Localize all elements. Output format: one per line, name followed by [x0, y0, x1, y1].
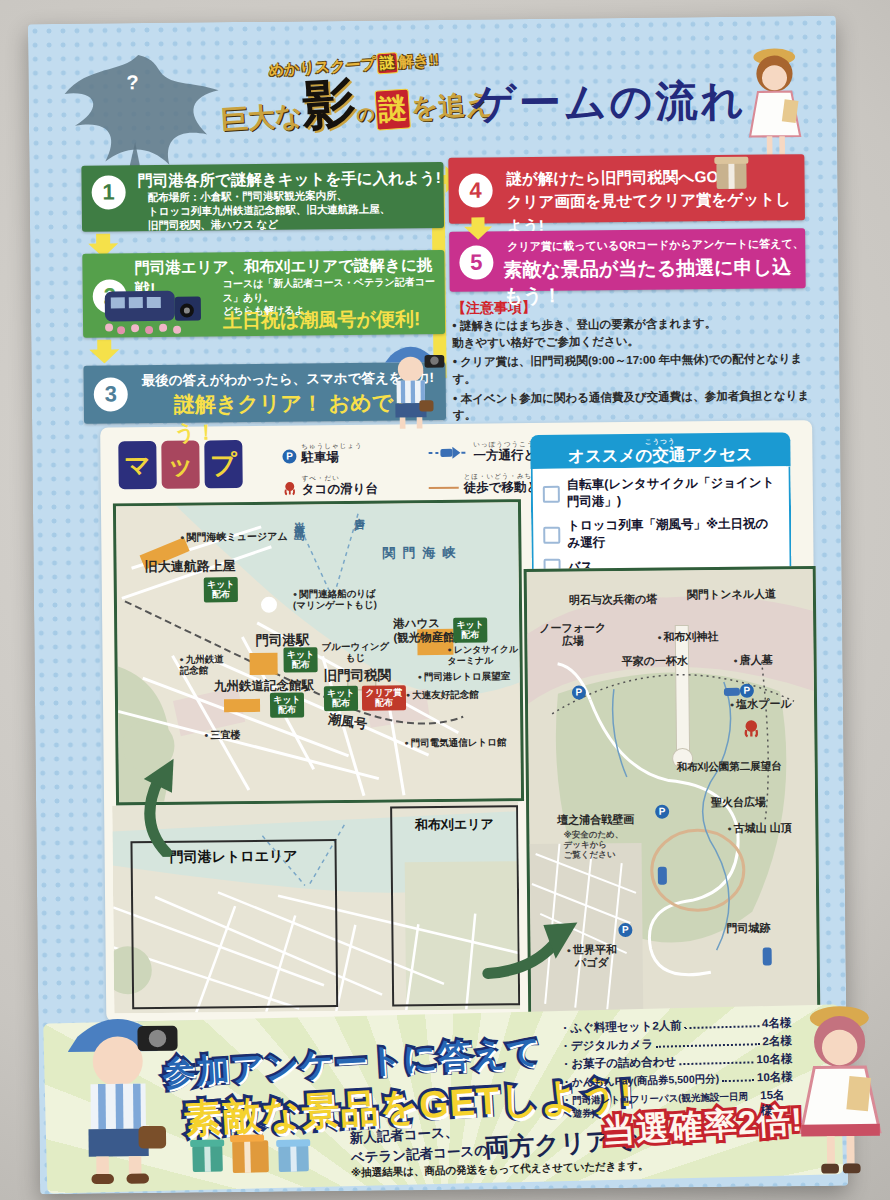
- parking-marker: P: [740, 684, 754, 698]
- prize-name: 門司港レトロフリーパス(観光施設一日周遊券): [572, 1090, 755, 1120]
- dotted-leader: [722, 1079, 754, 1082]
- checkbox-icon: [543, 485, 560, 502]
- arrow-to-right-map: [481, 915, 580, 982]
- prize-row: お菓子の詰め合わせ10名様: [560, 1051, 792, 1072]
- step-1-box: 1 門司港各所で謎解きキットを手に入れよう! 配布場所：小倉駅・門司港駅観光案内…: [81, 162, 444, 232]
- kit-badge: キット配布: [204, 577, 238, 602]
- kit-badge: キット配布: [270, 692, 304, 717]
- map-title-char: ッ: [161, 440, 200, 488]
- monster-question-mark: ?: [126, 71, 138, 94]
- map-label: 旧大連航路上屋: [145, 558, 236, 575]
- legend-parking: P ちゅうしゃじょう駐車場: [282, 443, 362, 464]
- gift-icon: [278, 1145, 309, 1172]
- access-item: 自転車(レンタサイクル「ジョイント門司港」): [543, 474, 779, 510]
- step-3-number: 3: [94, 377, 128, 411]
- dotted-leader: [679, 1061, 753, 1065]
- flyer-sheet: ? めかりスクープ謎解き!! 巨大な影の謎を追え ゲームの流れ 1 門司港各所で…: [28, 16, 848, 1194]
- map-label: ブルーウィング もじ: [321, 641, 389, 664]
- map-label: 門司港レトロ展望室: [418, 670, 511, 682]
- map-label: 関門海峡: [382, 545, 462, 561]
- map-label: 巌流島: [292, 512, 305, 524]
- logo-kage: 影: [300, 72, 358, 135]
- reporter-boy-icon: [42, 1005, 194, 1189]
- map-label: 塩水プール: [730, 697, 792, 711]
- map-label: 三宜楼: [204, 729, 240, 741]
- map-label: 和布刈公園第二展望台: [677, 759, 782, 773]
- train-icon: [97, 288, 207, 335]
- map-label: 聖火台広場: [711, 796, 766, 810]
- oneway-arrow-icon: [428, 447, 468, 459]
- dotted-leader: [656, 1043, 759, 1048]
- step-1-number: 1: [91, 175, 125, 209]
- step-4-box: 4 謎が解けたら旧門司税関へGO クリア画面を見せてクリア賞をゲットしよう!: [448, 154, 805, 224]
- map-title: マ ッ プ: [118, 440, 242, 489]
- access-item-label: トロッコ列車「潮風号」※土日祝のみ運行: [567, 515, 779, 551]
- logo-arc-post: 解き!!: [398, 51, 439, 70]
- map-label: 関門トンネル人道: [687, 587, 776, 601]
- clear-badge: クリア賞配布: [362, 685, 406, 710]
- step-2-highlight: 土日祝は潮風号が便利!: [223, 306, 420, 334]
- map-label: 大連友好記念館: [406, 689, 479, 701]
- reporter-boy-icon: [367, 338, 454, 435]
- map-label: 旧門司税関: [324, 667, 392, 684]
- map-label: 唐戸: [352, 509, 365, 513]
- map-label: 唐人墓: [734, 653, 773, 667]
- step-5-number: 5: [459, 245, 493, 279]
- map-label: 関門海峡ミュージアム: [180, 531, 288, 544]
- retro-area-box: 門司港レトロエリア: [130, 839, 338, 1009]
- photo-background: ? めかりスクープ謎解き!! 巨大な影の謎を追え ゲームの流れ 1 門司港各所で…: [0, 0, 890, 1200]
- map-title-char: プ: [204, 440, 243, 488]
- kit-badge: キット配布: [324, 686, 358, 711]
- note-item: クリア賞は、旧門司税関(9:00～17:00 年中無休)での配付となります。: [452, 350, 810, 387]
- step-1-body: 配布場所：小倉駅・門司港駅観光案内所、 トロッコ列車九州鉄道記念館駅、旧大連航路…: [148, 187, 391, 232]
- legend-octopus: すべ・だいタコの滑り台: [283, 475, 378, 496]
- prize-row: デジタルカメラ2名様: [560, 1033, 792, 1054]
- map-label: 明石与次兵衛の塔: [569, 593, 657, 607]
- map-label: 平家の一杯水: [622, 654, 688, 668]
- dotted-leader: [685, 1025, 759, 1029]
- logo-arc-nazo: 謎: [376, 52, 398, 74]
- area-label: 和布刈エリア: [392, 815, 516, 834]
- step-2-box: 2 門司港エリア、和布刈エリアで謎解きに挑戦! コースは「新人記者コース・ベテラ…: [82, 250, 445, 338]
- map-label: 港ハウス (観光物産館): [393, 617, 458, 645]
- arrow-down-icon: [464, 215, 492, 241]
- logo-pre: 巨大な: [220, 100, 303, 135]
- parking-icon: P: [282, 449, 296, 463]
- kit-badge: キット配布: [453, 617, 487, 642]
- prize-name: ふぐ料理セット2人前: [570, 1018, 682, 1036]
- map-label: ※安全のため、 デッキから ご覧ください: [563, 829, 623, 860]
- reporter-girl-icon: [780, 1001, 890, 1180]
- arrow-down-icon: [89, 339, 119, 363]
- parking-marker: P: [572, 685, 586, 699]
- footer-course-note: 新人記者コース、 ベテラン記者コースの: [349, 1121, 488, 1170]
- parking-marker: P: [655, 805, 669, 819]
- walk-road-icon: [429, 487, 459, 489]
- note-item: 謎解きにはまち歩き、登山の要素が含まれます。 動きやすい格好でご参加ください。: [452, 314, 810, 351]
- legend-label: 駐車場: [301, 450, 362, 463]
- step-4-number: 4: [458, 173, 492, 207]
- map-label: 門司電気通信レトロ館: [404, 736, 506, 748]
- map-label: ノーフォーク 広場: [539, 621, 606, 648]
- access-item-label: 自転車(レンタサイクル「ジョイント門司港」): [567, 474, 779, 510]
- prize-list: ふぐ料理セット2人前4名様 デジタルカメラ2名様 お菓子の詰め合わせ10名様 か…: [559, 1015, 793, 1126]
- access-box: こうつう オススメの交通アクセス 自転車(レンタサイクル「ジョイント門司港」) …: [530, 432, 792, 584]
- map-label: 門司城跡: [726, 922, 770, 936]
- prize-name: お菓子の詰め合わせ: [571, 1054, 676, 1072]
- access-ruby: こうつう: [645, 439, 676, 446]
- parking-marker: P: [618, 923, 632, 937]
- map-label: 古城山 山頂: [727, 821, 791, 835]
- kit-badge: キット配布: [283, 647, 317, 672]
- logo: めかりスクープ謎解き!! 巨大な影の謎を追え: [199, 45, 513, 141]
- arrow-to-left-map: [128, 752, 203, 857]
- gift-icon: [192, 1145, 223, 1172]
- map-label: レンタサイクル ターミナル: [447, 644, 518, 666]
- step-5-body: クリア賞に載っているQRコードからアンケートに答えて、: [507, 236, 804, 254]
- map-title-char: マ: [118, 441, 157, 489]
- access-item: トロッコ列車「潮風号」※土日祝のみ運行: [543, 515, 779, 551]
- prize-row: ふぐ料理セット2人前4名様: [559, 1015, 791, 1036]
- page-title: ゲームの流れ: [472, 73, 747, 132]
- access-title: オススメの交通アクセス: [568, 445, 753, 463]
- checkbox-icon: [543, 526, 560, 543]
- step-4-headline: 謎が解けたら旧門司税関へGO クリア画面を見せてクリア賞をゲットしよう!: [506, 164, 805, 237]
- prize-row: かんもんPay(商品券5,500円分)10名様: [561, 1069, 793, 1090]
- octopus-slide-icon: [742, 720, 760, 738]
- map-label: 関門連絡船のりば (マリンゲートもじ): [293, 588, 377, 612]
- step-5-highlight: 素敵な景品が当たる抽選に申し込もう！: [503, 254, 806, 309]
- map-panel: マ ッ プ P ちゅうしゃじょう駐車場 すべ・だいタコの滑り台 いっぽうつうこう…: [100, 420, 818, 1021]
- map-label: 和布刈神社: [657, 630, 718, 644]
- map-label: 九州鉄道 記念館: [179, 653, 223, 676]
- map-label: 壇之浦合戦壁画: [557, 813, 634, 827]
- prize-row: 門司港レトロフリーパス(観光施設一日周遊券)15名様: [561, 1087, 794, 1123]
- access-header: こうつう オススメの交通アクセス: [530, 432, 790, 469]
- prize-name: かんもんPay(商品券5,500円分): [572, 1072, 720, 1090]
- prize-name: デジタルカメラ: [571, 1037, 654, 1054]
- logo-nazo: 謎: [374, 89, 410, 131]
- logo-no: の: [356, 104, 376, 125]
- octopus-icon: [283, 481, 297, 495]
- step-5-box: 5 クリア賞に載っているQRコードからアンケートに答えて、 素敵な景品が当たる抽…: [449, 228, 806, 292]
- gift-icon: [232, 1140, 269, 1173]
- legend-label: タコの滑り台: [302, 482, 378, 495]
- gift-icon: [716, 163, 746, 189]
- note-item: 本イベント参加に関わる通信費及び交通費は、参加者負担となります。: [453, 387, 811, 424]
